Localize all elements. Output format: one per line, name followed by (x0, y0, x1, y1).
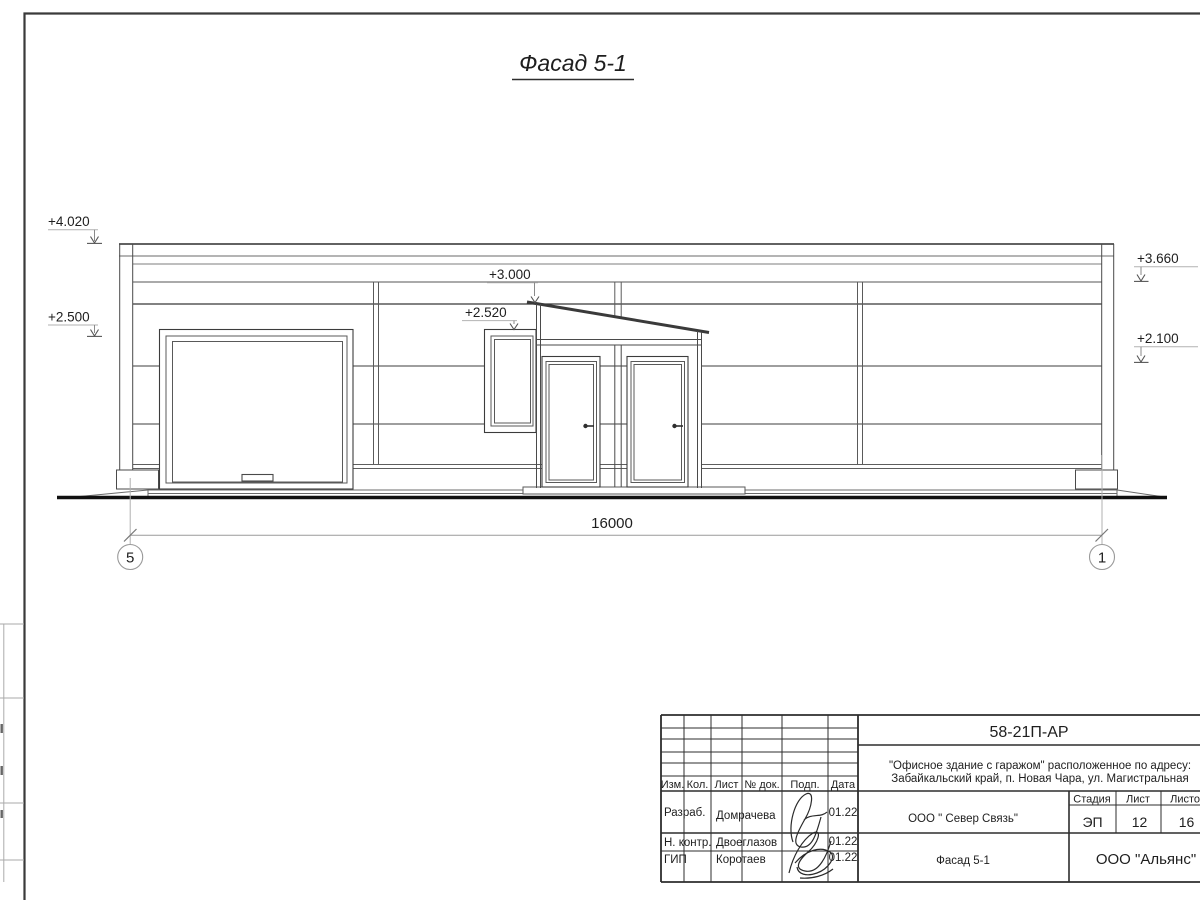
door-2-handle (672, 424, 676, 428)
col-podp: Подп. (790, 779, 819, 791)
facade-sheet-canvas: Фасад 5-1 (0, 0, 1200, 900)
row-role: ГИП (664, 854, 687, 866)
garage-door (160, 330, 354, 490)
elevation-label: +3.660 (1137, 251, 1179, 266)
row-role: Н. контр. (664, 837, 711, 849)
row-date: 01.22 (829, 807, 858, 819)
grid-bubble-1: 1 (1090, 545, 1115, 570)
row-name: Коротаев (716, 854, 766, 866)
grid-bubble-5: 5 (118, 545, 143, 570)
col-doc: № док. (744, 779, 779, 791)
garage-door-handle (242, 475, 273, 482)
axis-label: 5 (126, 550, 134, 567)
dimension-text: 16000 (591, 515, 633, 532)
entrance-porch (527, 302, 709, 488)
window (485, 330, 537, 433)
left-pilaster (120, 244, 133, 470)
col-izm: Изм. (661, 779, 685, 791)
elevation-mark-parapet-left: +4.020 (48, 214, 102, 243)
right-pilaster-base (1076, 470, 1118, 489)
row-role: Разраб. (664, 807, 705, 819)
col-kol: Кол. (687, 779, 709, 791)
elevation-label: +2.520 (465, 305, 507, 320)
doc-number: 58-21П-АР (989, 724, 1068, 741)
elevation-mark-parapet-right: +3.660 (1134, 251, 1198, 281)
facade-drawing: +4.020 +2.500 +3.000 +2.520 (48, 214, 1198, 570)
entrance-door-1 (542, 357, 600, 488)
row-name: Домрачева (716, 810, 776, 822)
signatures (789, 793, 833, 878)
elevation-label: +3.000 (489, 267, 531, 282)
elevation-mark-garage-top: +2.500 (48, 310, 102, 337)
col-data: Дата (831, 779, 856, 791)
entrance-step (523, 487, 745, 494)
row-date: 01.22 (829, 836, 858, 848)
col-list: Лист (715, 779, 739, 791)
entrance-door-2 (627, 357, 688, 488)
stage-label: Стадия (1073, 794, 1111, 806)
sheets-total: 16 (1179, 814, 1195, 830)
stage-value: ЭП (1082, 814, 1102, 830)
elevation-mark-wall-right: +2.100 (1134, 331, 1198, 362)
axis-label: 1 (1098, 550, 1106, 567)
project-address-line1: "Офисное здание с гаражом" расположенное… (889, 760, 1191, 772)
elevation-mark-canopy-top: +3.000 (487, 267, 539, 303)
entrance-canopy (527, 302, 709, 333)
elevation-mark-window-top: +2.520 (462, 305, 518, 330)
door-1-handle (583, 424, 587, 428)
sheet-number: 12 (1132, 814, 1148, 830)
sheet-label: Лист (1126, 794, 1150, 806)
row-name: Двоеглазов (716, 837, 777, 849)
left-ramp (80, 490, 148, 497)
left-margin-table (0, 624, 24, 882)
elevation-label: +2.500 (48, 310, 90, 325)
company-name: ООО " Север Связь" (908, 813, 1018, 825)
parapet (119, 244, 1114, 264)
right-pilaster (1102, 244, 1114, 470)
title-block: Изм. Кол. Лист № док. Подп. Дата Разраб.… (661, 715, 1200, 882)
left-pilaster-base (117, 470, 159, 489)
right-ramp (1117, 490, 1161, 497)
drawing-sheet: Фасад 5-1 (0, 0, 1200, 900)
elevation-label: +2.100 (1137, 331, 1179, 346)
project-address-line2: Забайкальский край, п. Новая Чара, ул. М… (891, 773, 1189, 785)
elevation-label: +4.020 (48, 214, 90, 229)
drawing-name: Фасад 5-1 (936, 855, 990, 867)
signature-1 (791, 793, 827, 847)
drawing-title-text: Фасад 5-1 (519, 50, 627, 76)
org-name: ООО "Альянс" (1096, 851, 1196, 868)
sheets-label: Листов (1170, 794, 1200, 806)
drawing-title: Фасад 5-1 (512, 50, 634, 80)
wall-joints (374, 282, 863, 465)
